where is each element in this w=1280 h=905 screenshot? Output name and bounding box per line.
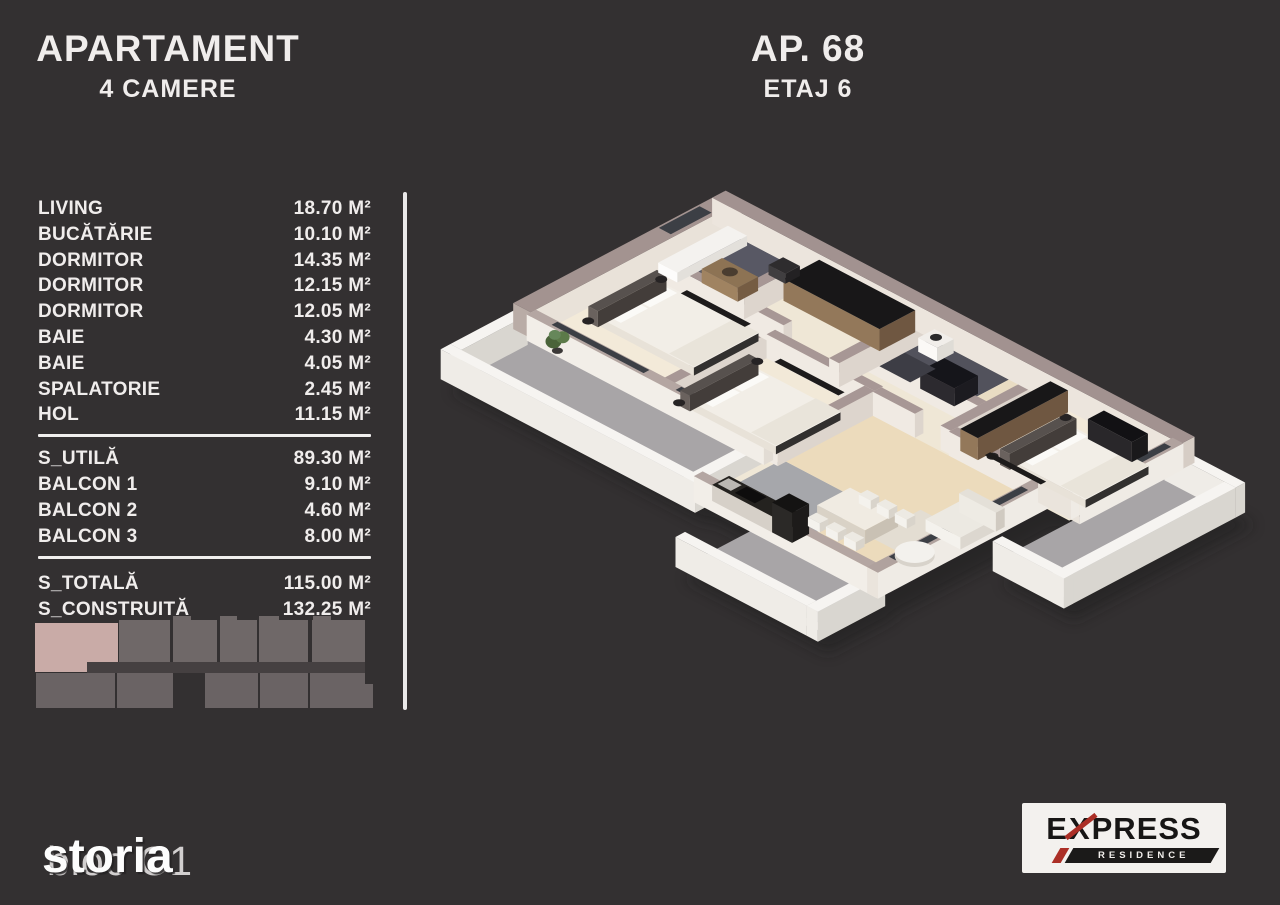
area-row: HOL11.15 M²: [38, 402, 371, 428]
minimap-roof-tab: [220, 616, 237, 621]
area-row: BAIE4.05 M²: [38, 351, 371, 377]
minimap-block: [205, 673, 258, 708]
area-row: LIVING18.70 M²: [38, 196, 371, 222]
minimap-block: [220, 620, 257, 662]
apartment-block: AP. 68 ETAJ 6: [700, 30, 916, 104]
logo-banner-text: RESIDENCE: [1094, 850, 1189, 861]
minimap-block: [310, 673, 365, 708]
logo-wordmark: EXPRESS: [1046, 813, 1201, 844]
apartment-poster: { "header_left": { "title": "APARTAMENT"…: [0, 0, 1280, 905]
separator-line: [38, 434, 371, 437]
minimap-roof-tab: [173, 616, 191, 621]
express-residence-logo: EXPRESS RESIDENCE: [1022, 803, 1226, 873]
summary-area: 8.00 M²: [304, 524, 371, 550]
minimap-block: [312, 620, 365, 662]
summary-row: S_UTILĂ89.30 M²: [38, 446, 371, 472]
storia-watermark: storia: [42, 829, 173, 884]
room-name: DORMITOR: [38, 248, 144, 274]
room-name: DORMITOR: [38, 299, 144, 325]
minimap-roof-tab: [259, 616, 279, 621]
area-row: BUCĂTĂRIE10.10 M²: [38, 222, 371, 248]
minimap-block: [259, 620, 308, 662]
area-row: BAIE4.30 M²: [38, 325, 371, 351]
minimap-floor-band: [87, 662, 365, 673]
vertical-divider: [403, 192, 407, 710]
room-area: 4.30 M²: [304, 325, 371, 351]
apartment-number: AP. 68: [700, 30, 916, 68]
summary-row: BALCON 19.10 M²: [38, 472, 371, 498]
summary-area: 89.30 M²: [294, 446, 371, 472]
minimap-block: [260, 673, 308, 708]
minimap-roof-tab: [313, 616, 331, 621]
room-area: 11.15 M²: [295, 402, 371, 428]
room-name: BAIE: [38, 325, 85, 351]
summary-area: 4.60 M²: [304, 498, 371, 524]
separator-line: [38, 556, 371, 559]
total-name: S_TOTALĂ: [38, 571, 139, 597]
minimap-block: [365, 684, 373, 708]
room-name: BUCĂTĂRIE: [38, 222, 153, 248]
summary-row: BALCON 38.00 M²: [38, 524, 371, 550]
logo-banner: RESIDENCE: [1065, 848, 1220, 863]
floor-number: ETAJ 6: [700, 75, 916, 104]
total-row: S_TOTALĂ115.00 M²: [38, 571, 371, 597]
summary-name: S_UTILĂ: [38, 446, 119, 472]
title-block: APARTAMENT 4 CAMERE: [26, 30, 310, 104]
summary-name: BALCON 2: [38, 498, 138, 524]
room-name: BAIE: [38, 351, 85, 377]
logo-x-icon: X: [1069, 813, 1091, 844]
room-area: 14.35 M²: [294, 248, 371, 274]
logo-letter: PRESS: [1092, 813, 1202, 844]
area-row: DORMITOR12.15 M²: [38, 273, 371, 299]
page-subtitle: 4 CAMERE: [26, 75, 310, 104]
total-area: 115.00 M²: [284, 571, 371, 597]
minimap-block: [173, 620, 217, 662]
room-area: 18.70 M²: [294, 196, 371, 222]
area-row: SPALATORIE2.45 M²: [38, 377, 371, 403]
room-name: DORMITOR: [38, 273, 144, 299]
room-area: 12.05 M²: [294, 299, 371, 325]
room-area: 2.45 M²: [304, 377, 371, 403]
summary-name: BALCON 1: [38, 472, 138, 498]
minimap-block: [119, 620, 170, 662]
building-minimap: [35, 614, 377, 710]
page-title: APARTAMENT: [26, 30, 310, 68]
minimap-block: [117, 673, 173, 708]
summary-name: BALCON 3: [38, 524, 138, 550]
logo-letter: E: [1046, 813, 1068, 844]
room-area: 4.05 M²: [304, 351, 371, 377]
room-area: 12.15 M²: [294, 273, 371, 299]
summary-area: 9.10 M²: [304, 472, 371, 498]
room-area: 10.10 M²: [294, 222, 371, 248]
room-name: LIVING: [38, 196, 103, 222]
area-row: DORMITOR12.05 M²: [38, 299, 371, 325]
area-table: LIVING18.70 M² BUCĂTĂRIE10.10 M² DORMITO…: [38, 196, 371, 623]
area-row: DORMITOR14.35 M²: [38, 248, 371, 274]
room-name: SPALATORIE: [38, 377, 160, 403]
minimap-block: [36, 673, 115, 708]
summary-row: BALCON 24.60 M²: [38, 498, 371, 524]
floor-plan-3d: [436, 190, 1266, 720]
room-name: HOL: [38, 402, 79, 428]
